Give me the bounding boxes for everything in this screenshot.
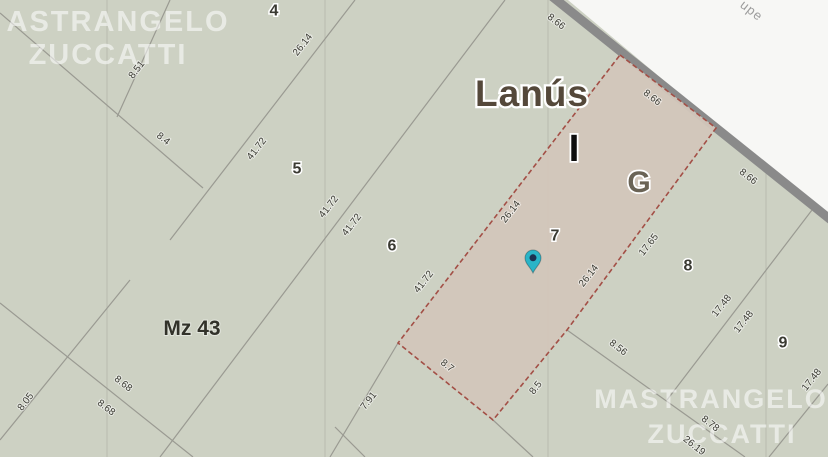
city-label: Lanús (475, 73, 589, 114)
lot-number: 6 (388, 238, 397, 255)
lot-number: 7 (551, 228, 560, 245)
lot-number: 8 (684, 258, 693, 275)
lot-number: 5 (293, 161, 302, 178)
lot-number: 4 (270, 3, 279, 20)
map-canvas: upe ASTRANGELO ZUCCATTI MASTRANGE (0, 0, 828, 457)
svg-text:ASTRANGELO: ASTRANGELO (7, 6, 230, 38)
block-label: Mz 43 (163, 317, 220, 340)
svg-text:ZUCCATTI: ZUCCATTI (29, 39, 188, 71)
lot-number: 9 (779, 335, 788, 352)
section-letter-i: I (569, 128, 580, 170)
pin-center-dot (530, 254, 537, 261)
section-letter-g: G (627, 166, 650, 199)
cadastral-map: upe ASTRANGELO ZUCCATTI MASTRANGE (0, 0, 828, 457)
svg-text:MASTRANGELO: MASTRANGELO (594, 384, 828, 414)
svg-text:ZUCCATTI: ZUCCATTI (648, 419, 797, 449)
